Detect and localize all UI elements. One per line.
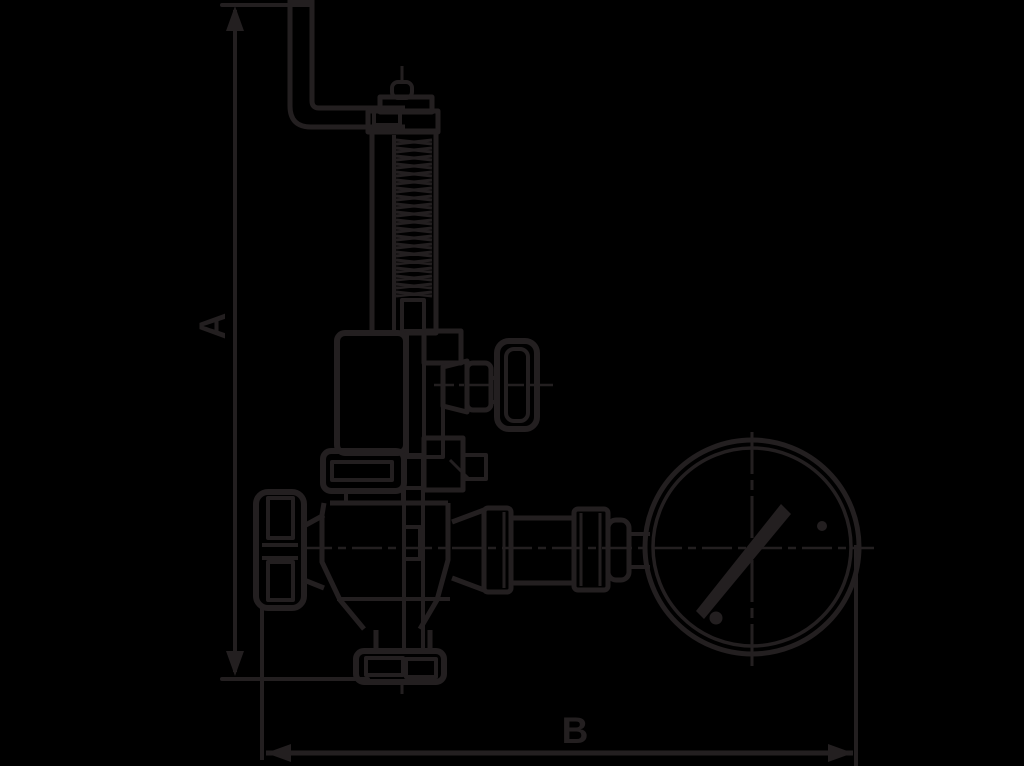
gauge-needle [696, 504, 791, 619]
lower-body [322, 455, 484, 650]
body-left-edge [322, 503, 364, 629]
spring-column [372, 131, 436, 333]
dim-b-label: B [562, 710, 589, 751]
spindle-slot [402, 300, 424, 331]
drawing-canvas: A B [0, 0, 1024, 766]
dimension-b: B [262, 545, 856, 766]
handwheel-hub-band [262, 545, 298, 558]
handwheel-upper-facet [268, 498, 293, 538]
dim-a-arrow-down-icon [226, 651, 244, 676]
gauge-connection-fittings [484, 508, 650, 592]
hex-fitting-2 [574, 509, 608, 590]
inlet-hex-connector [356, 630, 444, 682]
hex-fitting-1 [484, 508, 511, 592]
valve-technical-drawing: A B [0, 0, 1024, 766]
outlet-flange [443, 361, 467, 412]
hex-fitting-2-facets [581, 513, 600, 586]
dim-a-label: A [192, 313, 233, 340]
bonnet-outline [337, 333, 406, 453]
handwheel-lower-facet [268, 562, 293, 600]
outlet-top-block [424, 331, 461, 363]
gauge-socket [608, 520, 629, 580]
yoke-plate [407, 333, 424, 457]
gauge-dot-large [710, 612, 723, 625]
gauge-dot-small [817, 521, 827, 531]
outlet-column [424, 363, 443, 457]
inlet-hex-facet-right [406, 659, 436, 677]
dim-b-arrow-right-icon [828, 744, 853, 762]
spring-coils [396, 140, 432, 296]
dim-a-arrow-up-icon [226, 6, 244, 31]
dim-b-arrow-left-icon [266, 744, 291, 762]
channel-detail [404, 527, 420, 559]
union-nut-facet [332, 462, 392, 480]
handwheel-outline [256, 492, 304, 608]
gauge-cone [452, 510, 484, 590]
handwheel [256, 492, 324, 608]
test-lever [290, 0, 405, 127]
connector-cylinder [511, 518, 574, 583]
outlet-collar [467, 363, 491, 410]
inlet-hex-facet-left [366, 658, 403, 675]
